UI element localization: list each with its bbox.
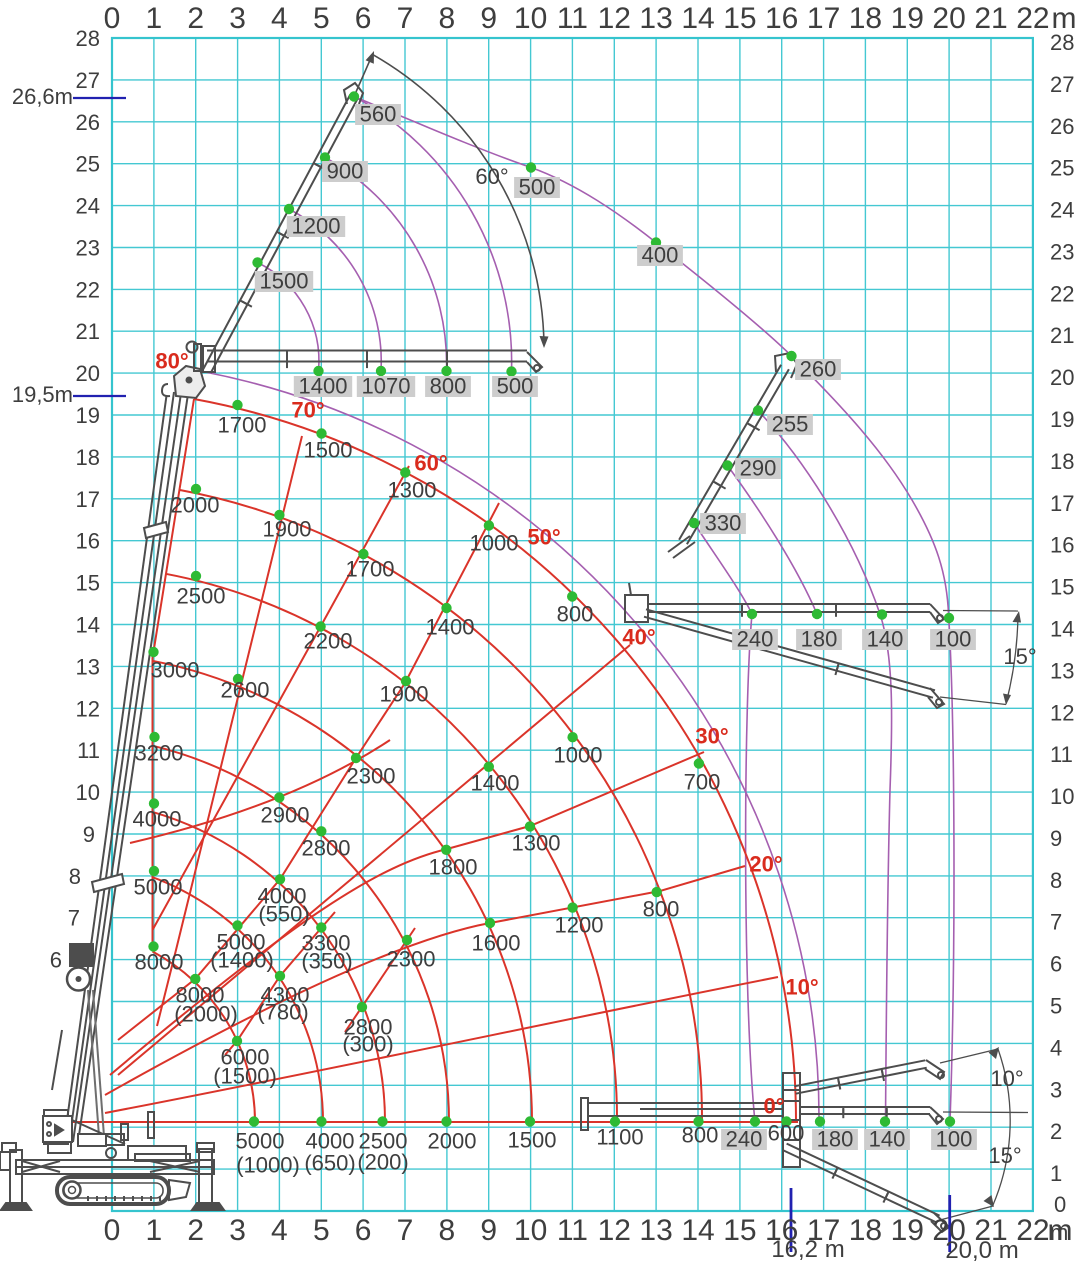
svg-text:12: 12 bbox=[598, 2, 631, 35]
svg-text:5: 5 bbox=[313, 2, 330, 35]
svg-text:70°: 70° bbox=[291, 398, 324, 423]
svg-text:16: 16 bbox=[76, 529, 100, 554]
svg-text:8: 8 bbox=[69, 864, 81, 889]
svg-text:9: 9 bbox=[480, 2, 497, 35]
svg-text:3: 3 bbox=[1050, 1077, 1062, 1102]
svg-text:10: 10 bbox=[514, 2, 547, 35]
svg-text:800: 800 bbox=[682, 1123, 719, 1148]
svg-text:16: 16 bbox=[765, 1214, 798, 1247]
svg-text:19: 19 bbox=[76, 403, 100, 428]
svg-text:0: 0 bbox=[104, 1214, 121, 1247]
svg-text:2300: 2300 bbox=[387, 947, 436, 972]
svg-text:80°: 80° bbox=[155, 349, 188, 374]
svg-text:2200: 2200 bbox=[304, 629, 353, 654]
svg-text:1800: 1800 bbox=[429, 855, 478, 880]
svg-text:22: 22 bbox=[76, 277, 100, 302]
svg-text:400: 400 bbox=[642, 243, 679, 268]
svg-text:1: 1 bbox=[146, 1214, 163, 1247]
svg-text:0°: 0° bbox=[763, 1094, 784, 1119]
svg-text:10°: 10° bbox=[990, 1066, 1023, 1091]
svg-text:2: 2 bbox=[187, 1214, 204, 1247]
svg-text:12: 12 bbox=[76, 696, 100, 721]
svg-text:600: 600 bbox=[768, 1121, 805, 1146]
svg-text:6: 6 bbox=[355, 1214, 372, 1247]
svg-text:8: 8 bbox=[1050, 868, 1062, 893]
svg-text:19: 19 bbox=[1050, 407, 1074, 432]
svg-text:2000: 2000 bbox=[428, 1129, 477, 1154]
svg-text:500: 500 bbox=[497, 374, 534, 399]
svg-text:3200: 3200 bbox=[135, 741, 184, 766]
svg-text:24: 24 bbox=[1050, 198, 1074, 223]
svg-text:18: 18 bbox=[849, 2, 882, 35]
svg-text:255: 255 bbox=[772, 412, 809, 437]
svg-text:10: 10 bbox=[76, 780, 100, 805]
svg-text:25: 25 bbox=[1050, 156, 1074, 181]
svg-text:15: 15 bbox=[1050, 575, 1074, 600]
svg-text:5: 5 bbox=[313, 1214, 330, 1247]
svg-text:27: 27 bbox=[1050, 72, 1074, 97]
svg-text:0: 0 bbox=[1054, 1192, 1066, 1217]
svg-text:2900: 2900 bbox=[261, 803, 310, 828]
svg-text:26,6m: 26,6m bbox=[12, 84, 73, 109]
svg-text:5: 5 bbox=[1050, 994, 1062, 1019]
svg-text:6: 6 bbox=[355, 2, 372, 35]
svg-text:(2000): (2000) bbox=[174, 1002, 238, 1027]
svg-text:0: 0 bbox=[104, 2, 121, 35]
svg-text:3: 3 bbox=[229, 2, 246, 35]
svg-text:17: 17 bbox=[807, 1214, 840, 1247]
svg-text:(1400): (1400) bbox=[210, 948, 274, 973]
svg-text:14: 14 bbox=[681, 1214, 714, 1247]
svg-text:(200): (200) bbox=[357, 1150, 408, 1175]
svg-text:7: 7 bbox=[397, 1214, 414, 1247]
svg-text:1400: 1400 bbox=[426, 615, 475, 640]
svg-text:60°: 60° bbox=[414, 451, 447, 476]
svg-text:14: 14 bbox=[1050, 617, 1074, 642]
svg-text:100: 100 bbox=[935, 627, 972, 652]
svg-text:60°: 60° bbox=[475, 164, 508, 189]
svg-text:12: 12 bbox=[1050, 700, 1074, 725]
svg-text:2500: 2500 bbox=[177, 584, 226, 609]
svg-text:15: 15 bbox=[723, 1214, 756, 1247]
svg-text:1100: 1100 bbox=[596, 1125, 643, 1150]
svg-text:500: 500 bbox=[519, 175, 556, 200]
svg-text:(350): (350) bbox=[301, 949, 352, 974]
svg-text:21: 21 bbox=[76, 319, 100, 344]
svg-text:800: 800 bbox=[430, 374, 467, 399]
svg-text:1500: 1500 bbox=[304, 438, 353, 463]
svg-text:800: 800 bbox=[643, 897, 680, 922]
svg-text:9: 9 bbox=[83, 822, 95, 847]
svg-text:4: 4 bbox=[271, 1214, 288, 1247]
svg-text:5000: 5000 bbox=[236, 1129, 285, 1154]
svg-text:26: 26 bbox=[1050, 114, 1074, 139]
svg-text:20: 20 bbox=[932, 2, 965, 35]
svg-text:16: 16 bbox=[1050, 533, 1074, 558]
svg-text:15°: 15° bbox=[988, 1143, 1021, 1168]
svg-text:330: 330 bbox=[705, 511, 742, 536]
svg-text:22: 22 bbox=[1016, 2, 1049, 35]
svg-text:1400: 1400 bbox=[299, 374, 348, 399]
svg-text:900: 900 bbox=[327, 159, 364, 184]
svg-text:20: 20 bbox=[1050, 365, 1074, 390]
svg-text:50°: 50° bbox=[527, 525, 560, 550]
svg-text:23: 23 bbox=[76, 236, 100, 261]
svg-text:21: 21 bbox=[974, 2, 1007, 35]
svg-text:180: 180 bbox=[801, 627, 838, 652]
svg-text:13: 13 bbox=[76, 654, 100, 679]
svg-text:2800: 2800 bbox=[302, 836, 351, 861]
svg-text:1000: 1000 bbox=[470, 531, 519, 556]
svg-text:3: 3 bbox=[229, 1214, 246, 1247]
svg-text:1300: 1300 bbox=[388, 478, 437, 503]
svg-text:22: 22 bbox=[1050, 281, 1074, 306]
svg-text:13: 13 bbox=[1050, 658, 1074, 683]
svg-text:17: 17 bbox=[1050, 491, 1074, 516]
svg-text:11: 11 bbox=[557, 1214, 588, 1247]
svg-text:(780): (780) bbox=[257, 1000, 308, 1025]
svg-text:9: 9 bbox=[480, 1214, 497, 1247]
svg-text:4000: 4000 bbox=[133, 807, 182, 832]
svg-text:560: 560 bbox=[360, 102, 397, 127]
svg-text:2300: 2300 bbox=[347, 764, 396, 789]
svg-text:8: 8 bbox=[439, 2, 456, 35]
svg-text:7: 7 bbox=[1050, 910, 1062, 935]
svg-text:18: 18 bbox=[76, 445, 100, 470]
svg-text:10: 10 bbox=[514, 1214, 547, 1247]
svg-text:28: 28 bbox=[76, 26, 100, 51]
svg-text:21: 21 bbox=[1050, 323, 1074, 348]
svg-text:10°: 10° bbox=[785, 975, 818, 1000]
svg-text:3000: 3000 bbox=[151, 658, 200, 683]
svg-text:13: 13 bbox=[639, 2, 672, 35]
svg-text:1500: 1500 bbox=[260, 269, 309, 294]
svg-text:6: 6 bbox=[50, 948, 62, 973]
svg-text:140: 140 bbox=[867, 627, 904, 652]
svg-text:20: 20 bbox=[932, 1214, 965, 1247]
svg-text:18: 18 bbox=[849, 1214, 882, 1247]
svg-text:19,5m: 19,5m bbox=[12, 382, 73, 407]
svg-text:40°: 40° bbox=[622, 625, 655, 650]
svg-text:240: 240 bbox=[726, 1127, 763, 1152]
svg-text:2000: 2000 bbox=[171, 493, 220, 518]
svg-text:1600: 1600 bbox=[472, 931, 521, 956]
svg-text:(1500): (1500) bbox=[213, 1064, 277, 1089]
svg-text:2: 2 bbox=[187, 2, 204, 35]
svg-text:700: 700 bbox=[684, 770, 721, 795]
svg-text:290: 290 bbox=[740, 456, 777, 481]
svg-text:1700: 1700 bbox=[218, 413, 267, 438]
svg-text:1: 1 bbox=[1050, 1161, 1062, 1186]
svg-text:180: 180 bbox=[817, 1127, 854, 1152]
svg-text:23: 23 bbox=[1050, 240, 1074, 265]
svg-text:5000: 5000 bbox=[134, 875, 183, 900]
svg-text:11: 11 bbox=[1050, 742, 1073, 767]
svg-text:4: 4 bbox=[1050, 1035, 1062, 1060]
svg-text:15°: 15° bbox=[1003, 644, 1036, 669]
svg-text:21: 21 bbox=[974, 1214, 1007, 1247]
svg-text:1200: 1200 bbox=[292, 214, 341, 239]
svg-text:4: 4 bbox=[271, 2, 288, 35]
svg-text:18: 18 bbox=[1050, 449, 1074, 474]
svg-text:20: 20 bbox=[76, 361, 100, 386]
svg-text:(550): (550) bbox=[258, 902, 309, 927]
svg-text:17: 17 bbox=[76, 487, 100, 512]
svg-text:140: 140 bbox=[869, 1127, 906, 1152]
svg-text:11: 11 bbox=[77, 738, 100, 763]
svg-text:10: 10 bbox=[1050, 784, 1074, 809]
svg-text:9: 9 bbox=[1050, 826, 1062, 851]
svg-text:20°: 20° bbox=[749, 852, 782, 877]
svg-text:1500: 1500 bbox=[508, 1128, 557, 1153]
svg-text:1900: 1900 bbox=[380, 682, 429, 707]
svg-text:15: 15 bbox=[723, 2, 756, 35]
svg-text:(650): (650) bbox=[304, 1151, 355, 1176]
svg-text:7: 7 bbox=[68, 906, 80, 931]
svg-text:m: m bbox=[1050, 1220, 1068, 1245]
svg-text:(300): (300) bbox=[342, 1032, 393, 1057]
svg-text:28: 28 bbox=[1050, 30, 1074, 55]
svg-text:1300: 1300 bbox=[512, 831, 561, 856]
svg-text:19: 19 bbox=[891, 1214, 924, 1247]
svg-text:800: 800 bbox=[557, 602, 594, 627]
svg-text:1070: 1070 bbox=[362, 374, 411, 399]
svg-text:25: 25 bbox=[76, 152, 100, 177]
svg-text:8000: 8000 bbox=[135, 950, 184, 975]
svg-text:16: 16 bbox=[765, 2, 798, 35]
svg-text:1200: 1200 bbox=[555, 913, 604, 938]
svg-text:15: 15 bbox=[76, 571, 100, 596]
svg-text:2600: 2600 bbox=[221, 678, 270, 703]
svg-text:26: 26 bbox=[76, 110, 100, 135]
svg-text:6: 6 bbox=[1050, 952, 1062, 977]
svg-text:14: 14 bbox=[681, 2, 714, 35]
svg-text:1: 1 bbox=[146, 2, 163, 35]
svg-text:8: 8 bbox=[439, 1214, 456, 1247]
svg-text:1400: 1400 bbox=[471, 771, 520, 796]
svg-text:1700: 1700 bbox=[346, 557, 395, 582]
svg-text:100: 100 bbox=[936, 1127, 973, 1152]
svg-text:13: 13 bbox=[639, 1214, 672, 1247]
svg-text:260: 260 bbox=[800, 357, 837, 382]
svg-text:7: 7 bbox=[397, 2, 414, 35]
svg-text:24: 24 bbox=[76, 194, 100, 219]
svg-text:19: 19 bbox=[891, 2, 924, 35]
svg-text:240: 240 bbox=[737, 627, 774, 652]
svg-text:(1000): (1000) bbox=[236, 1153, 300, 1178]
svg-text:1000: 1000 bbox=[554, 743, 603, 768]
svg-text:27: 27 bbox=[76, 68, 100, 93]
svg-text:12: 12 bbox=[598, 1214, 631, 1247]
svg-text:11: 11 bbox=[557, 2, 588, 35]
svg-text:1900: 1900 bbox=[263, 517, 312, 542]
svg-text:2: 2 bbox=[1050, 1119, 1062, 1144]
svg-text:22: 22 bbox=[1016, 1214, 1049, 1247]
svg-text:30°: 30° bbox=[695, 724, 728, 749]
svg-text:14: 14 bbox=[76, 613, 100, 638]
svg-text:17: 17 bbox=[807, 2, 840, 35]
